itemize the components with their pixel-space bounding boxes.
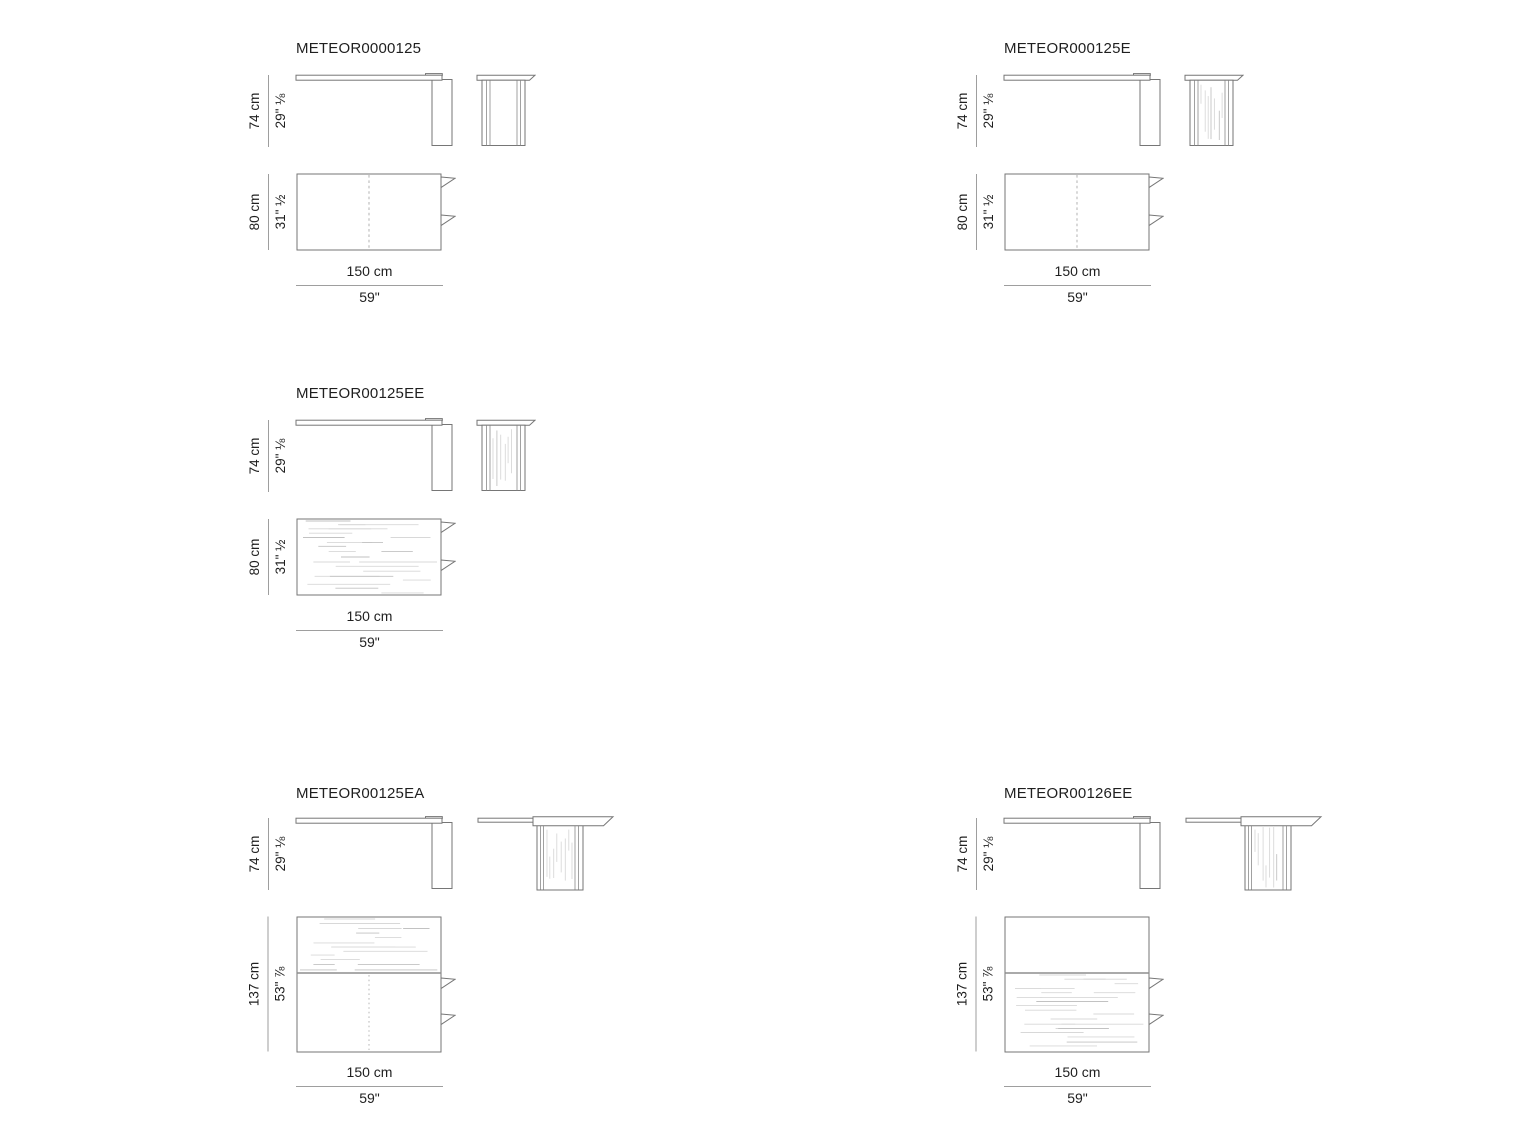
height-cm: 74 cm bbox=[954, 75, 976, 147]
pedestal-end-profile bbox=[537, 826, 583, 891]
width-inches: 59" bbox=[1004, 286, 1151, 307]
pedestal-end-profile bbox=[1245, 826, 1291, 891]
height-cm: 74 cm bbox=[246, 420, 268, 492]
tabletop-side-profile bbox=[1004, 818, 1150, 823]
extension-latch-marker bbox=[441, 522, 455, 533]
depth-cm: 80 cm bbox=[246, 519, 268, 595]
leg-side-profile bbox=[1140, 823, 1160, 889]
extension-latch-marker bbox=[441, 177, 455, 188]
depth-dimension: 80 cm 31" ½ bbox=[245, 519, 291, 595]
depth-dimension: 80 cm 31" ½ bbox=[245, 174, 291, 250]
elevation-drawing bbox=[294, 814, 620, 894]
height-dimension: 74 cm 29" ⅛ bbox=[953, 818, 999, 890]
elevation-drawing bbox=[294, 417, 536, 495]
width-dimension: 150 cm 59" bbox=[296, 607, 443, 652]
tabletop-end-profile bbox=[1185, 75, 1243, 80]
model-code-title: METEOR000125E bbox=[1004, 40, 1131, 57]
height-inches: 29" ⅛ bbox=[269, 420, 290, 492]
depth-cm: 80 cm bbox=[246, 174, 268, 250]
depth-cm: 80 cm bbox=[954, 174, 976, 250]
tabletop-outline-top-view bbox=[1005, 174, 1149, 250]
height-dimension: 74 cm 29" ⅛ bbox=[245, 420, 291, 492]
height-cm: 74 cm bbox=[246, 818, 268, 890]
height-cm: 74 cm bbox=[246, 75, 268, 147]
depth-inches: 53" ⅞ bbox=[269, 917, 290, 1052]
elevation-drawing bbox=[294, 72, 536, 150]
pedestal-end-profile bbox=[482, 425, 525, 490]
depth-inches: 31" ½ bbox=[269, 174, 290, 250]
elevation-drawing bbox=[1002, 814, 1328, 894]
tabletop-end-profile bbox=[477, 75, 535, 80]
depth-inches: 53" ⅞ bbox=[977, 917, 998, 1052]
tabletop-side-profile bbox=[1004, 75, 1150, 80]
top-view-drawing bbox=[294, 517, 456, 597]
tabletop-end-profile bbox=[477, 420, 535, 425]
extension-latch-marker bbox=[1149, 1014, 1163, 1025]
top-view-drawing bbox=[294, 915, 456, 1055]
width-inches: 59" bbox=[296, 631, 443, 652]
tabletop-side-profile bbox=[296, 818, 442, 823]
extension-latch-marker bbox=[1149, 177, 1163, 188]
tabletop-side-profile bbox=[296, 420, 442, 425]
extension-latch-marker bbox=[441, 215, 455, 226]
width-dimension: 150 cm 59" bbox=[1004, 262, 1151, 307]
height-cm: 74 cm bbox=[954, 818, 976, 890]
height-inches: 29" ⅛ bbox=[269, 75, 290, 147]
width-dimension: 150 cm 59" bbox=[1004, 1063, 1151, 1108]
width-cm: 150 cm bbox=[296, 1063, 443, 1086]
depth-dimension: 80 cm 31" ½ bbox=[953, 174, 999, 250]
width-cm: 150 cm bbox=[1004, 262, 1151, 285]
pedestal-end-profile bbox=[1190, 80, 1233, 145]
extension-latch-marker bbox=[1149, 978, 1163, 989]
height-inches: 29" ⅛ bbox=[977, 818, 998, 890]
top-view-drawing bbox=[294, 172, 456, 252]
leg-side-profile bbox=[432, 823, 452, 889]
height-dimension: 74 cm 29" ⅛ bbox=[953, 75, 999, 147]
width-dimension: 150 cm 59" bbox=[296, 262, 443, 307]
width-inches: 59" bbox=[1004, 1087, 1151, 1108]
model-code-title: METEOR00126EE bbox=[1004, 785, 1133, 802]
extension-latch-marker bbox=[441, 978, 455, 989]
width-cm: 150 cm bbox=[296, 607, 443, 630]
top-view-drawing bbox=[1002, 915, 1164, 1055]
pedestal-end-profile bbox=[482, 80, 525, 145]
tabletop-side-profile bbox=[296, 75, 442, 80]
tabletop-end-profile bbox=[1241, 817, 1321, 826]
tabletop-end-profile bbox=[533, 817, 613, 826]
tabletop-outline-top-view bbox=[297, 174, 441, 250]
height-inches: 29" ⅛ bbox=[977, 75, 998, 147]
dimension-sheet: METEOR0000125 74 cm 29" ⅛ 80 cm 31" ½ 15… bbox=[0, 0, 1524, 1143]
depth-dimension: 137 cm 53" ⅞ bbox=[245, 917, 291, 1052]
tabletop-outline-top-view bbox=[1005, 917, 1149, 1052]
extension-latch-marker bbox=[441, 560, 455, 571]
width-dimension: 150 cm 59" bbox=[296, 1063, 443, 1108]
model-code-title: METEOR00125EE bbox=[296, 385, 425, 402]
extension-leaf-end-profile bbox=[478, 818, 535, 822]
height-dimension: 74 cm 29" ⅛ bbox=[245, 818, 291, 890]
extension-latch-marker bbox=[441, 1014, 455, 1025]
model-code-title: METEOR0000125 bbox=[296, 40, 421, 57]
width-cm: 150 cm bbox=[296, 262, 443, 285]
height-inches: 29" ⅛ bbox=[269, 818, 290, 890]
extension-latch-marker bbox=[1149, 215, 1163, 226]
depth-cm: 137 cm bbox=[954, 917, 976, 1052]
extension-leaf-end-profile bbox=[1186, 818, 1243, 822]
depth-dimension: 137 cm 53" ⅞ bbox=[953, 917, 999, 1052]
depth-cm: 137 cm bbox=[246, 917, 268, 1052]
model-code-title: METEOR00125EA bbox=[296, 785, 425, 802]
height-dimension: 74 cm 29" ⅛ bbox=[245, 75, 291, 147]
leg-side-profile bbox=[432, 425, 452, 491]
elevation-drawing bbox=[1002, 72, 1244, 150]
width-inches: 59" bbox=[296, 286, 443, 307]
width-inches: 59" bbox=[296, 1087, 443, 1108]
width-cm: 150 cm bbox=[1004, 1063, 1151, 1086]
depth-inches: 31" ½ bbox=[977, 174, 998, 250]
leg-side-profile bbox=[432, 80, 452, 146]
leg-side-profile bbox=[1140, 80, 1160, 146]
depth-inches: 31" ½ bbox=[269, 519, 290, 595]
top-view-drawing bbox=[1002, 172, 1164, 252]
